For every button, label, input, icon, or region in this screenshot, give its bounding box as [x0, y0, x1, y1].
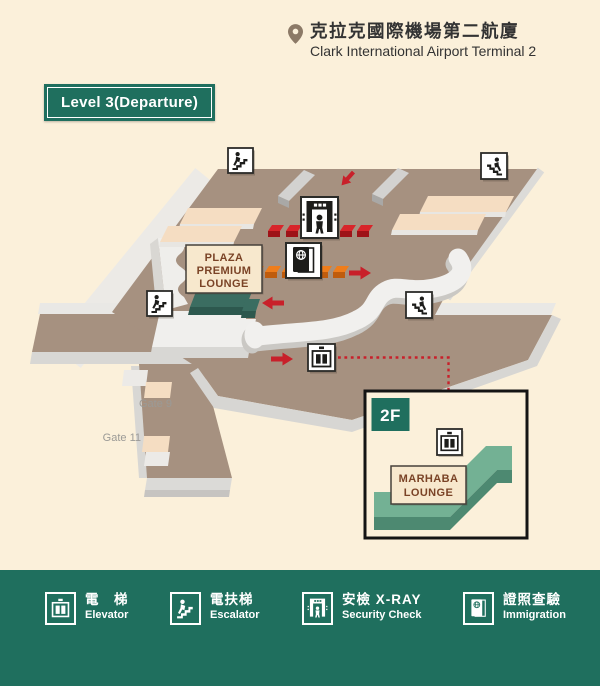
- legend-label-en: Security Check: [342, 608, 422, 622]
- gate9-entry: [144, 382, 172, 398]
- svg-text:PLAZA: PLAZA: [205, 252, 244, 264]
- escalator-icon: [170, 592, 201, 625]
- immigration-icon: [463, 592, 494, 625]
- legend-label-en: Immigration: [503, 608, 566, 622]
- jet-bridge-gate9: [122, 370, 148, 386]
- elevator-icon: [437, 429, 464, 457]
- security-check-icon: [301, 197, 340, 241]
- legend-item-escalator: 電扶梯 Escalator: [170, 592, 302, 625]
- elevator-icon: [45, 592, 76, 625]
- legend-item-security-check: 安檢 X-RAY Security Check: [302, 592, 463, 625]
- svg-text:LOUNGE: LOUNGE: [404, 487, 453, 499]
- legend-bar: 電 梯 Elevator 電扶梯 Escalator 安檢 X-RAY Secu…: [0, 570, 600, 686]
- round-pillar: [245, 322, 266, 349]
- plaza-premium-lounge-label: PLAZA PREMIUM LOUNGE: [186, 245, 264, 295]
- legend-label-cjk: 證照查驗: [503, 592, 566, 607]
- legend-label-en: Elevator: [85, 608, 129, 622]
- inset-2f: 2F MARHABA LOUNGE: [365, 391, 527, 538]
- svg-text:PREMIUM: PREMIUM: [197, 265, 252, 277]
- marhaba-lounge-label: MARHABA LOUNGE: [391, 466, 468, 506]
- gate11-label: Gate 11: [103, 432, 141, 444]
- escalator-down-icon: [481, 153, 509, 182]
- page: 克拉克國際機場第二航廈 Clark International Airport …: [0, 0, 600, 686]
- jet-bridge-gate11: [144, 452, 170, 466]
- legend-item-elevator: 電 梯 Elevator: [45, 592, 170, 625]
- svg-text:2F: 2F: [380, 406, 401, 425]
- security-check-icon: [302, 592, 333, 625]
- legend-label-cjk: 電扶梯: [210, 592, 260, 607]
- svg-text:LOUNGE: LOUNGE: [199, 278, 248, 290]
- escalator-down-icon: [406, 292, 434, 321]
- legend-label-cjk: 電 梯: [85, 592, 129, 607]
- gate11-entry: [142, 436, 170, 452]
- svg-text:MARHABA: MARHABA: [399, 473, 459, 485]
- right-wing-rim: [431, 303, 556, 317]
- escalator-up-icon: [147, 291, 174, 319]
- legend-label-cjk: 安檢 X-RAY: [342, 592, 422, 607]
- elevator-icon: [308, 344, 337, 374]
- escalator-up-icon: [228, 148, 255, 176]
- legend-item-immigration: 證照查驗 Immigration: [463, 592, 566, 625]
- legend-label-en: Escalator: [210, 608, 260, 622]
- immigration-icon: [286, 243, 323, 281]
- gate9-label: Gate 9: [139, 398, 172, 410]
